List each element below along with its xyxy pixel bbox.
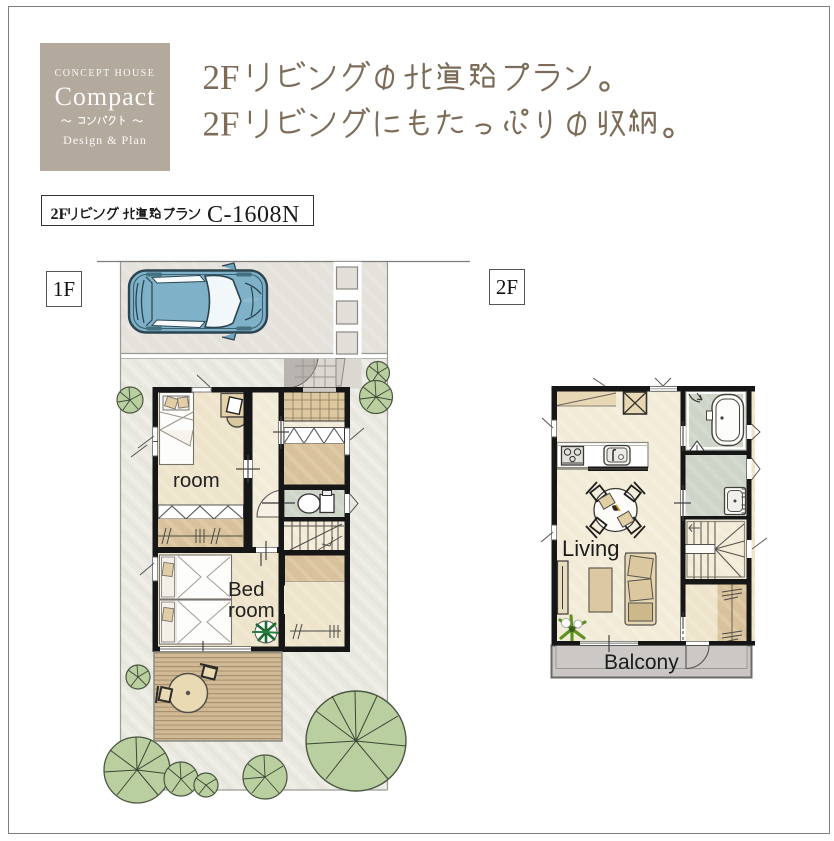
svg-text:2F: 2F [51, 206, 69, 223]
svg-text:Balcony: Balcony [604, 651, 679, 674]
svg-text:room: room [173, 469, 220, 492]
svg-text:2F: 2F [203, 58, 240, 97]
svg-text:C-1608N: C-1608N [207, 202, 300, 228]
svg-text:Living: Living [562, 536, 619, 561]
svg-text:Bed: Bed [228, 578, 264, 601]
svg-text:2F: 2F [203, 105, 240, 144]
svg-text:room: room [228, 599, 275, 622]
